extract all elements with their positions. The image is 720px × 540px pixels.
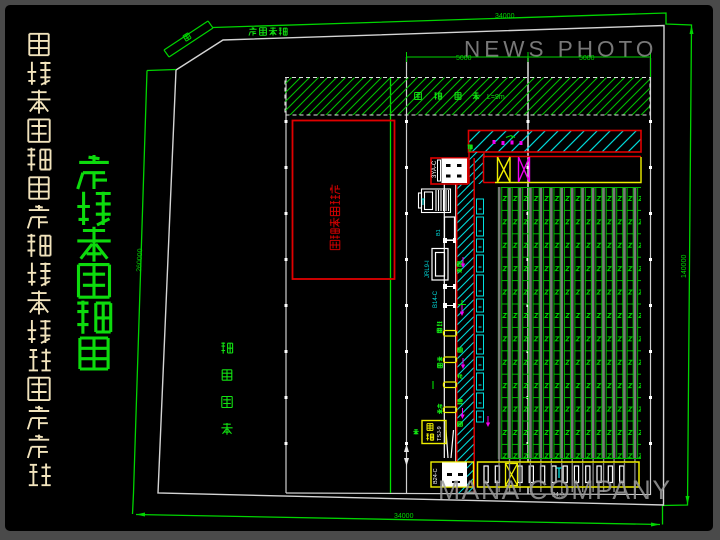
svg-text:JRL9-I: JRL9-I xyxy=(425,260,431,278)
svg-text:L=9m: L=9m xyxy=(487,94,505,101)
svg-text:260000: 260000 xyxy=(136,248,144,272)
svg-text:B14-C: B14-C xyxy=(433,290,439,308)
svg-text:34000: 34000 xyxy=(495,13,515,20)
svg-text:140000: 140000 xyxy=(681,255,688,278)
svg-text:3YA-C: 3YA-C xyxy=(432,160,438,178)
svg-text:NEWS PHOTO: NEWS PHOTO xyxy=(464,37,657,62)
svg-text:34000: 34000 xyxy=(394,513,414,520)
svg-text:MANA COMPANY: MANA COMPANY xyxy=(438,475,672,505)
svg-text:B1: B1 xyxy=(436,229,442,236)
svg-text:TSJ-9: TSJ-9 xyxy=(437,426,443,441)
